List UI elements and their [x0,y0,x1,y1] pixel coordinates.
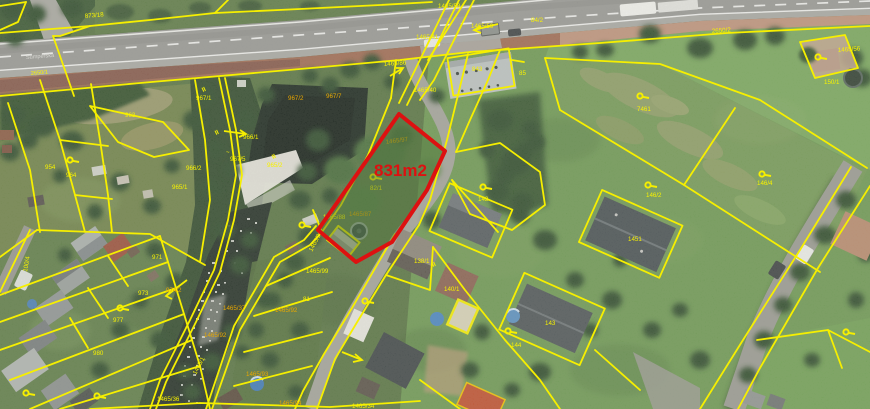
svg-text:140/1: 140/1 [444,286,460,293]
svg-text:1465/36: 1465/36 [157,396,180,403]
svg-text:963: 963 [125,112,136,119]
svg-text:967/7: 967/7 [326,93,342,100]
svg-text:1465/37: 1465/37 [223,305,246,312]
svg-text:143: 143 [545,320,556,327]
svg-text:965/2: 965/2 [267,162,283,169]
svg-text:1465/99: 1465/99 [306,268,329,275]
svg-text:965/1: 965/1 [172,184,188,191]
svg-text:966/2: 966/2 [186,165,202,172]
svg-text:144: 144 [511,342,522,349]
svg-text:1465/94: 1465/94 [279,400,302,407]
svg-text:964: 964 [66,172,77,179]
svg-text:146/2: 146/2 [646,192,662,199]
svg-text:1465/34: 1465/34 [352,403,375,409]
svg-text:977: 977 [113,317,124,324]
svg-text:966/1: 966/1 [243,134,259,141]
svg-text:7461: 7461 [637,106,651,113]
svg-text:81: 81 [303,296,310,303]
svg-text:85: 85 [519,70,526,77]
svg-text:1465/40: 1465/40 [414,87,437,94]
svg-text:973: 973 [138,290,149,297]
svg-text:1465/92: 1465/92 [204,332,227,339]
svg-text:2650/2: 2650/2 [712,27,732,35]
svg-text:1451: 1451 [628,236,642,243]
svg-text:967/5: 967/5 [230,156,246,163]
svg-text:1465/92: 1465/92 [275,307,298,314]
svg-text:974/2: 974/2 [166,287,182,294]
svg-text:84/2: 84/2 [531,17,544,24]
svg-text:831m2: 831m2 [374,161,427,180]
svg-text:~: ~ [226,149,230,156]
svg-text:138/1: 138/1 [414,258,430,265]
svg-text:967/2: 967/2 [288,95,304,102]
svg-text:1465/41: 1465/41 [416,34,439,41]
svg-text:1465/59: 1465/59 [471,23,494,30]
svg-text:843: 843 [472,66,483,73]
svg-text:146/4: 146/4 [757,180,773,187]
svg-text:1465/58: 1465/58 [438,3,461,10]
svg-text:971: 971 [152,254,163,261]
svg-text:980: 980 [93,350,104,357]
svg-text:1465/93: 1465/93 [246,371,269,378]
svg-text:142: 142 [478,196,489,203]
svg-text:150/1: 150/1 [824,79,840,86]
svg-text:954: 954 [45,164,56,171]
svg-text:967/1: 967/1 [196,95,212,102]
